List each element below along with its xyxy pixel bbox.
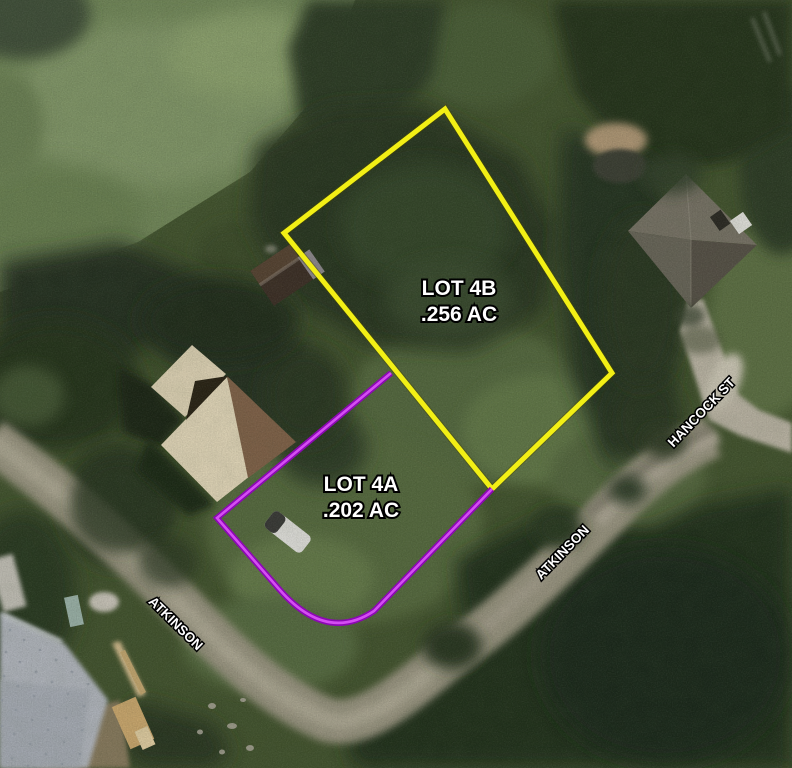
svg-text:LOT 4B: LOT 4B — [422, 277, 497, 300]
svg-text:.202 AC: .202 AC — [323, 499, 399, 522]
svg-text:.256 AC: .256 AC — [421, 303, 497, 326]
svg-text:LOT 4A: LOT 4A — [324, 473, 399, 496]
